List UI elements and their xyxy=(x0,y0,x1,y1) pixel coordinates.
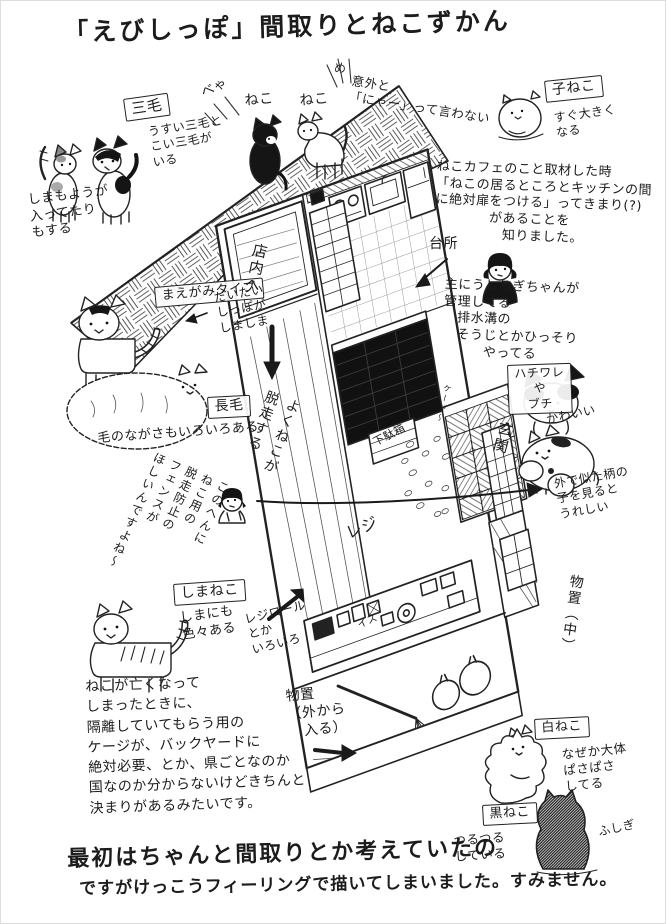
roof-cat2-sound: め xyxy=(334,61,347,76)
roof-cat2-label: ねこ xyxy=(299,90,329,110)
kuroneko-label: 黒ねこ xyxy=(482,802,538,825)
cafe-note: ねこカフェのこと取材した時 「ねこの居るところとキッチンの間 に絶対扉をつける」… xyxy=(434,159,653,250)
mike-note2: しまもようが 入ってたり もする xyxy=(27,183,113,242)
illustration-page: 「えびしっぽ」間取りとねこずかん 三毛 うすい三毛と こい三毛が いる しまもよ… xyxy=(0,0,666,924)
shironeko-label: 白ねこ xyxy=(534,716,590,739)
manage-note: 主にうしろぎちゃんが 管理してる 排水溝の そうじとかひっそり やってる xyxy=(442,277,580,365)
black-cat xyxy=(536,790,597,875)
kitchen-label: 台所 xyxy=(429,236,458,254)
hachiware-label: ハチワレ や ブチ xyxy=(507,363,573,415)
roof-cat1-label: ねこ xyxy=(244,90,274,110)
kitten xyxy=(499,91,543,140)
rule-note: ねこが亡くなって しまったときに、 隔離していてもらう用の ケージが、バックヤー… xyxy=(85,669,307,819)
shiro-note: なぜか大体 ぱさぱさ してる xyxy=(561,740,631,795)
chomo-label: 長毛 xyxy=(207,395,251,419)
